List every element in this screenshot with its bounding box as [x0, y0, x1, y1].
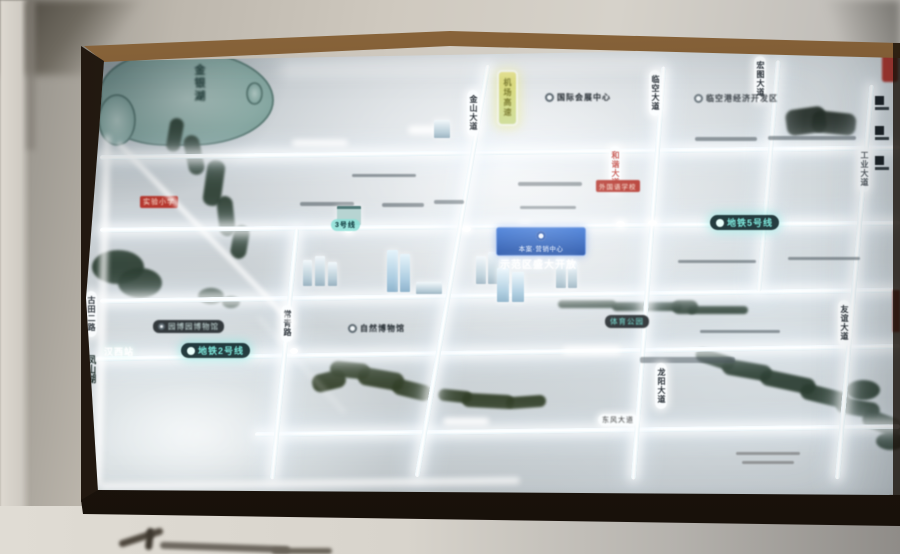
glass-glare [280, 59, 660, 76]
minor-road [695, 137, 757, 141]
poi-name: 国际会展中心 [557, 92, 611, 103]
poi-name: 园博园博物馆 [168, 321, 219, 332]
metro-station-icon [648, 220, 657, 226]
road-name-pill: 临空大道 [649, 70, 661, 116]
school-badge: 实验小学 [140, 196, 178, 208]
school-badge: 外国语学校 [596, 180, 640, 192]
building-icon [434, 120, 450, 138]
metro-line-name: 地铁5号线 [727, 216, 773, 229]
road-name-pill: 东风大道 [598, 414, 638, 426]
project-name: 本案·营销中心 [519, 243, 564, 253]
project-logo-icon [536, 231, 546, 241]
highway-badge: 机场高速 [497, 70, 518, 126]
minor-road [700, 330, 780, 333]
photo-of-map-display: 金山大道 临空大道 宏图大道 和谐大道 古田二路 常青路 龙阳大道 友谊大道 工… [0, 0, 900, 554]
lake-name: 金银湖 [193, 64, 204, 103]
building-icon [400, 254, 410, 292]
metro-line-label: 3号线 [331, 219, 360, 231]
poi-circle-icon [694, 94, 703, 103]
metro-line-name: 地铁2号线 [198, 344, 244, 357]
road-name-pill: 龙阳大道 [655, 363, 667, 409]
label-smudge [434, 200, 464, 204]
metro-logo-icon [187, 347, 195, 355]
station-label: 汉西站 [104, 345, 134, 358]
metro-station-icon [462, 226, 471, 232]
building-icon [512, 272, 524, 302]
metro-line-label: 地铁5号线 [710, 215, 779, 230]
greenway [506, 395, 547, 410]
poi-circle-icon [158, 323, 165, 330]
legend-qr-icon [875, 126, 889, 140]
road-name-pill: 工业大道 [858, 146, 870, 192]
poi-name: 自然博物馆 [360, 323, 405, 334]
minor-road [640, 357, 735, 363]
poi-circle-icon [348, 324, 357, 333]
minor-road [768, 136, 856, 140]
legend-text [742, 461, 794, 464]
building-icon [416, 282, 442, 294]
road [255, 424, 900, 437]
metro-station-icon [616, 221, 625, 227]
building-icon [315, 256, 325, 286]
metro-station-icon [290, 348, 298, 354]
road-name-pill: 金山大道 [467, 90, 479, 136]
road-label-glow [443, 418, 489, 425]
building-icon [476, 256, 486, 284]
edge-light [100, 477, 520, 490]
minor-road [520, 206, 576, 209]
legend-qr-icon [875, 96, 889, 110]
minor-road [518, 182, 582, 186]
canal [688, 306, 748, 314]
wall-sketch [272, 548, 332, 554]
wall-corner-highlight [0, 0, 30, 554]
legend-text [736, 452, 800, 455]
project-marker: 本案·营销中心 [496, 227, 586, 256]
building-icon [303, 260, 312, 286]
legend-qr-icon [875, 156, 889, 170]
lake-inlet [246, 82, 263, 105]
metro-logo-icon [716, 219, 724, 227]
road-name-pill: 常青路 [281, 305, 293, 342]
building-icon [387, 250, 398, 292]
road-name-pill: 友谊大道 [838, 300, 850, 346]
park-patch [811, 110, 857, 136]
road [100, 145, 900, 160]
metro-line-label: 地铁2号线 [181, 343, 250, 358]
greenbelt [118, 268, 162, 298]
canal [558, 300, 616, 308]
poi-label: 临空港经济开发区 [694, 93, 778, 104]
road-label-glow [563, 347, 621, 354]
project-glow-text: 示范区盛大开放 [500, 256, 577, 271]
road-label-glow [292, 140, 348, 146]
building-icon [497, 268, 509, 302]
building-icon [328, 262, 337, 286]
poi-circle-icon [545, 93, 554, 102]
display-frame-right [893, 43, 900, 496]
map-display: 金山大道 临空大道 宏图大道 和谐大道 古田二路 常青路 龙阳大道 友谊大道 工… [0, 0, 900, 554]
park-label: 体育公园 [605, 315, 649, 328]
poi-label: 园博园博物馆 [153, 320, 224, 333]
minor-road [788, 257, 860, 260]
wall-seam [27, 0, 35, 150]
poi-label: 国际会展中心 [545, 92, 611, 103]
minor-road [352, 174, 416, 177]
poi-label: 自然博物馆 [348, 323, 405, 334]
label-smudge [382, 203, 424, 207]
minor-road [678, 260, 756, 263]
pond [846, 380, 880, 400]
poi-name: 临空港经济开发区 [706, 93, 778, 104]
